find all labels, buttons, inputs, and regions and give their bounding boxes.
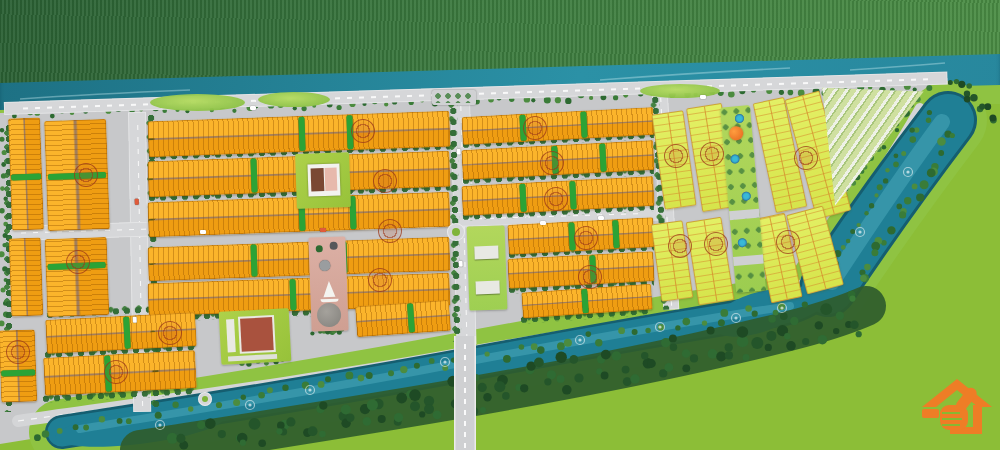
plan-layer	[0, 0, 1000, 450]
car	[540, 221, 546, 225]
car	[457, 149, 461, 155]
car	[200, 230, 206, 234]
car	[250, 106, 256, 110]
car	[320, 228, 326, 232]
car	[598, 216, 604, 220]
car	[133, 317, 137, 323]
masterplan-render	[0, 0, 1000, 450]
car	[700, 95, 706, 99]
car	[459, 261, 463, 267]
logo-arm	[922, 409, 939, 418]
house-thumbs-up-logo	[920, 376, 994, 440]
cars-group	[0, 0, 1000, 450]
car	[135, 199, 139, 205]
